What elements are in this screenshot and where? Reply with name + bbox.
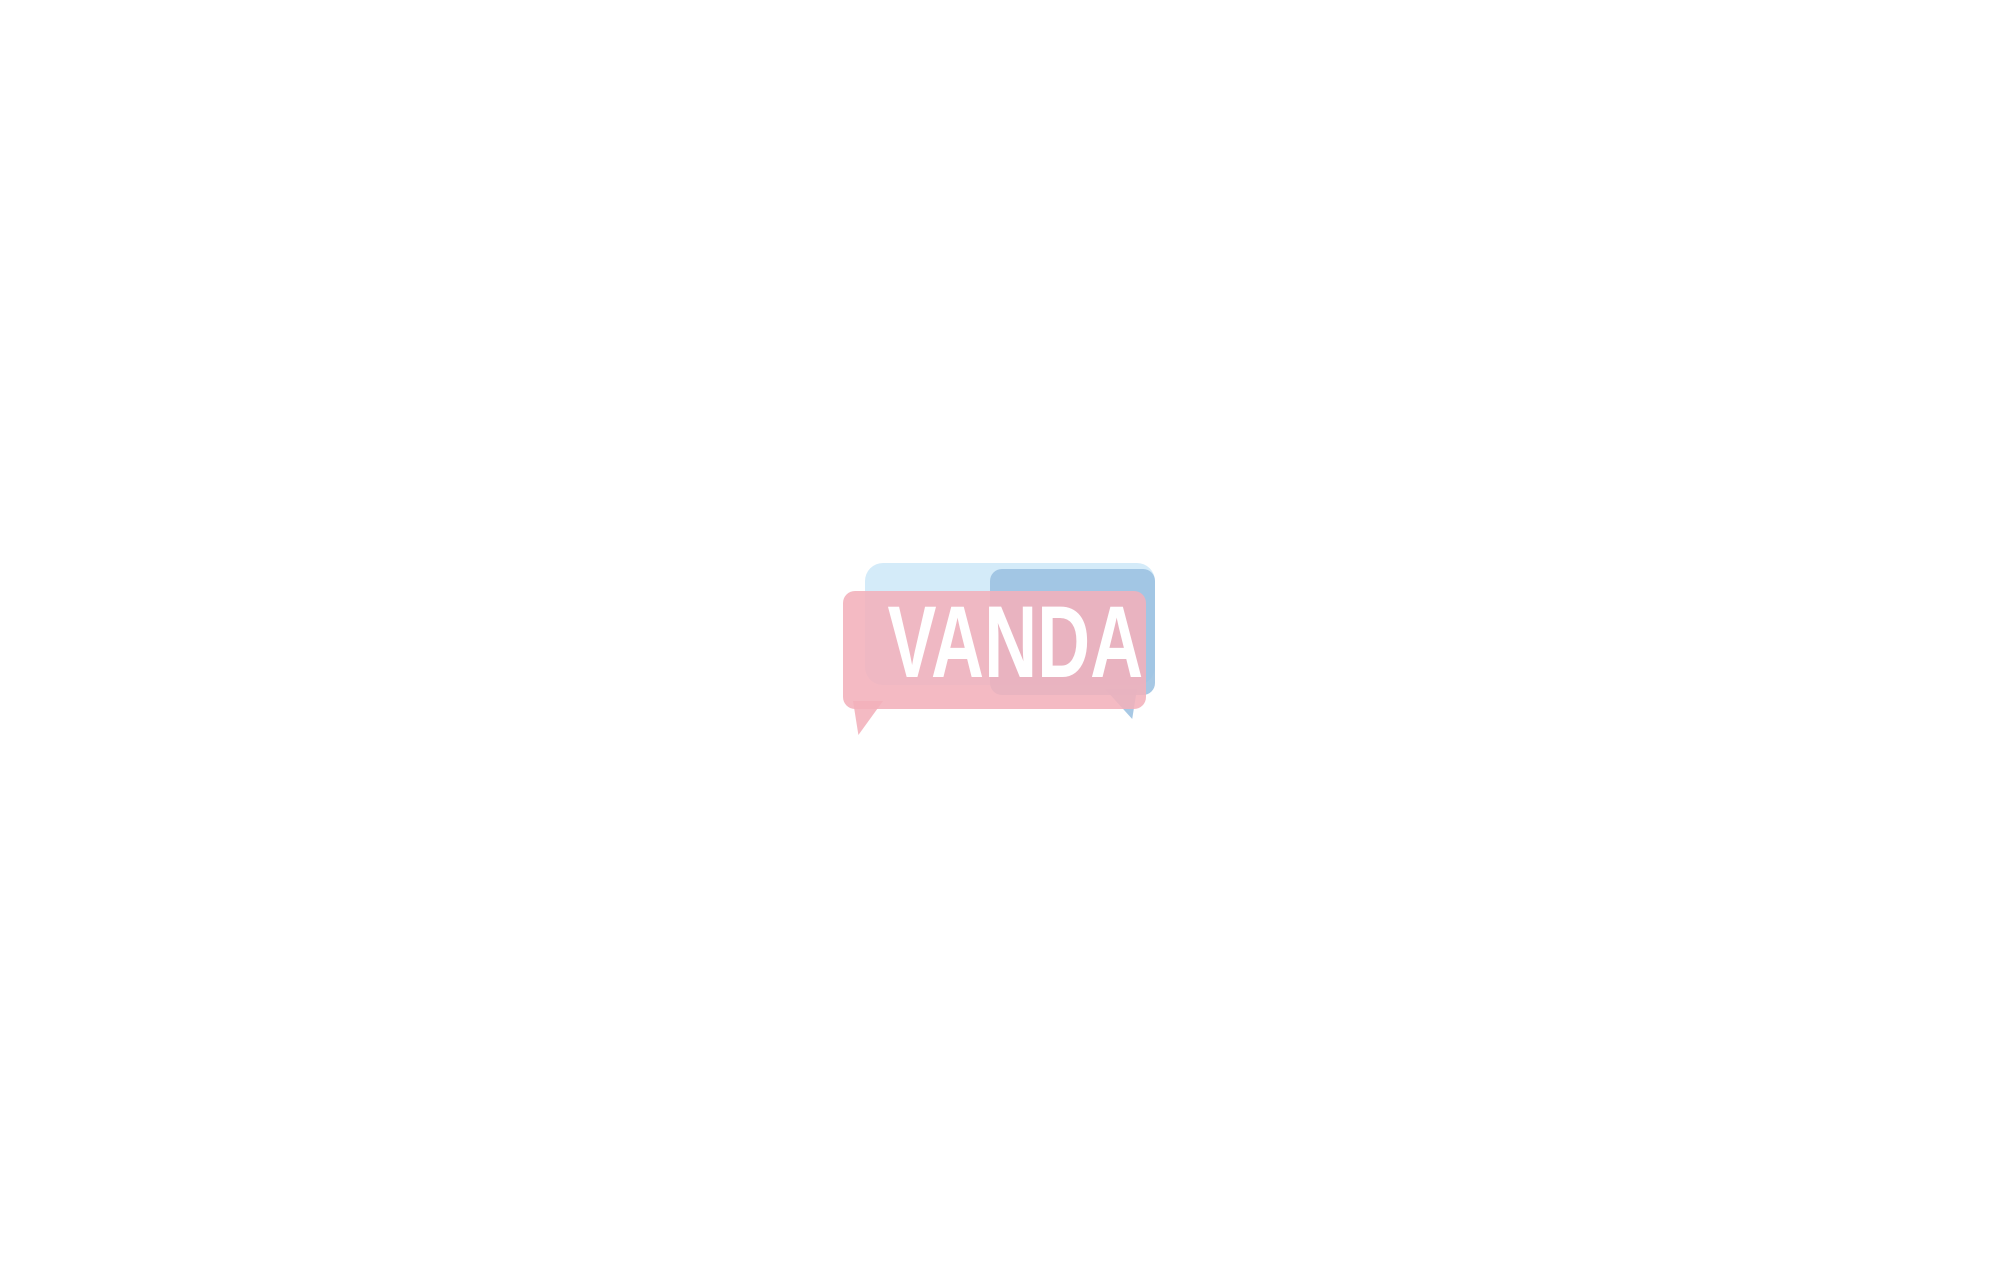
floor-plan-svg: 24 0002 4002 4002 4002 4002 4002 4002 40… bbox=[0, 0, 2000, 1285]
paper-background bbox=[0, 0, 2000, 1285]
floor-plan-canvas: 24 0002 4002 4002 4002 4002 4002 4002 40… bbox=[0, 0, 2000, 1285]
